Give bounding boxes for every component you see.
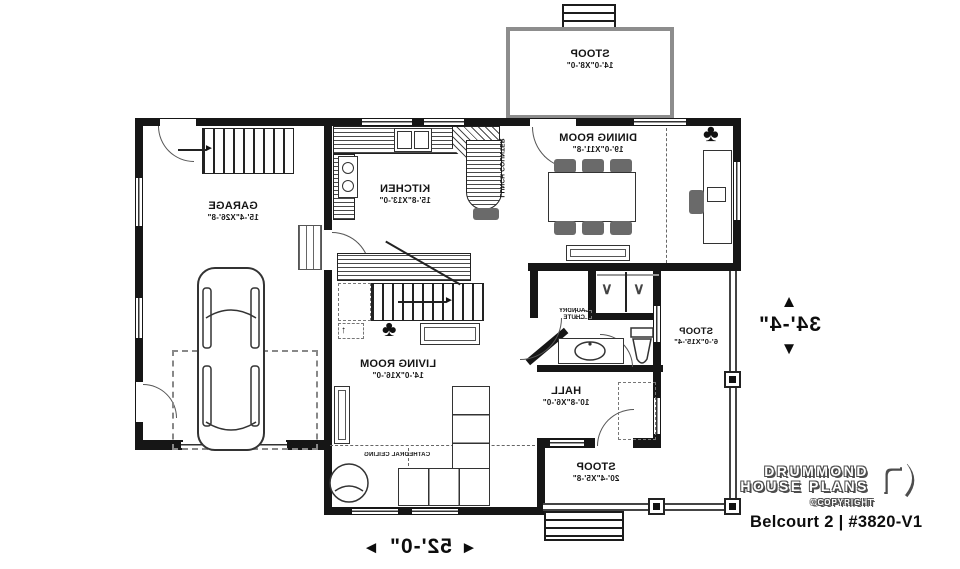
living-dims: 14'-0"X16'-0": [338, 371, 458, 381]
floor-plan: STOOP 14'-0"X8'-0" ►: [0, 0, 960, 569]
copyright-label: ©COPYRIGHT: [740, 499, 960, 507]
dining-chair: [610, 221, 632, 235]
wall-closet-bottom: [596, 313, 661, 320]
bath-sink-icon: [572, 340, 608, 363]
plant-icon-dining: ♣: [703, 122, 719, 146]
width-dimension-value: 52'-0": [389, 535, 452, 559]
kitchen-window-2: [424, 119, 464, 125]
car-icon: [190, 262, 280, 456]
branding-block: DRUMMOND HOUSE PLANS ©COPYRIGHT Belcourt…: [740, 459, 960, 545]
porch-post: [724, 498, 741, 515]
logo-wordmark: DRUMMOND HOUSE PLANS: [740, 464, 869, 493]
living-cabinet: [334, 386, 350, 444]
dining-table: [548, 172, 636, 222]
laundry-chute-line1: LAUNDRY: [552, 308, 596, 315]
living-label: LIVING ROOM 14'-0"X16'-0": [338, 358, 458, 381]
stoop-right-dims: 6'-0"X15'-4": [636, 337, 756, 346]
arrow-left-icon: ◄: [363, 539, 380, 556]
stove-burner-1: [342, 162, 354, 174]
dining-name: DINING ROOM: [538, 132, 658, 145]
stoop-top-dims: 14'-0"X8'-0": [530, 61, 650, 71]
logo-line2: HOUSE PLANS: [740, 479, 869, 494]
stairs-arrow-icon: ►: [444, 296, 454, 306]
stoop-right-name: STOOP: [636, 326, 756, 337]
dining-dims: 19'-0"X11'-8": [538, 145, 658, 155]
hanger-icon-2: ∨: [633, 282, 645, 298]
logo-line1: DRUMMOND: [740, 464, 869, 479]
porch-post: [648, 498, 665, 515]
kitchen-dims: 15'-8"X13'-0": [345, 196, 465, 206]
dining-window-right: [734, 162, 740, 220]
hanger-icon-1: ∨: [601, 282, 613, 298]
garage-label: GARAGE 15'-4"X26'-8": [173, 200, 293, 223]
top-stoop-outline: [506, 27, 674, 119]
garage-window-1: [136, 178, 142, 226]
living-window-1: [352, 509, 398, 514]
porch-post: [724, 371, 741, 388]
laundry-chute-line2: CHUTE: [552, 315, 596, 322]
porch-rail-bottom: [543, 503, 737, 511]
living-window-2: [412, 509, 458, 514]
dining-chair: [554, 159, 576, 173]
laundry-chute-box-2: [0, 52, 17, 70]
stoop-right-label: STOOP 6'-0"X15'-4": [636, 326, 756, 346]
kitchen-window-1: [362, 119, 412, 125]
stairs-arrow-line: [398, 301, 446, 303]
round-chair-icon: [328, 462, 370, 504]
logo-row: DRUMMOND HOUSE PLANS: [740, 459, 960, 499]
lunch-counter-label: LUNCH COUNTER: [497, 132, 505, 204]
closet-divider: [625, 272, 627, 312]
arrow-right-icon: ►: [460, 539, 477, 556]
garage-stairs-arrow-icon: ►: [204, 144, 214, 154]
plan-title: Belcourt 2 | #3820-V1: [740, 513, 960, 532]
stoop-bottom-name: STOOP: [536, 461, 656, 474]
living-ceiling-line: [330, 445, 535, 446]
arrow-down-icon: ▼: [781, 340, 798, 357]
stairs-up-arrow-icon: ↑: [341, 326, 346, 336]
garage-dims: 15'-4"X26'-8": [173, 213, 293, 223]
drummond-logo-icon: [874, 459, 920, 499]
garage-top-door-gap: [160, 119, 196, 126]
wall-divider: [324, 126, 332, 507]
hall-label: HALL 10'-8"X6'-0": [506, 385, 626, 408]
bottom-stoop-steps: [544, 511, 624, 541]
wall-dining-bottom: [528, 263, 741, 271]
mudroom-door-gap: [324, 230, 332, 270]
arrow-up-icon: ▲: [781, 293, 798, 310]
garage-top-door-arc: [158, 126, 194, 162]
desk-monitor: [707, 187, 726, 202]
hall-left-door-arc: [520, 318, 562, 360]
hall-name: HALL: [506, 385, 626, 398]
stoop-top-label: STOOP 14'-0"X8'-0": [530, 48, 650, 71]
wall-laundry-left: [530, 263, 538, 318]
kitchen-sink-basin-right: [414, 131, 429, 149]
buffet: [566, 245, 630, 261]
cathedral-ceiling-label: CATHEDRAL CEILING: [342, 452, 452, 459]
garage-window-2: [136, 298, 142, 338]
counter-stool: [473, 208, 499, 220]
stoop-bottom-label: STOOP 20'-4"X5'-8": [536, 461, 656, 484]
porch-rail-right: [729, 271, 737, 509]
stairs-dashed-run: [338, 283, 371, 321]
hall-dims: 10'-8"X6'-0": [506, 398, 626, 408]
dining-chair: [554, 221, 576, 235]
laundry-chute-label: LAUNDRY CHUTE: [552, 308, 596, 321]
sofa-section-vertical: [452, 386, 490, 472]
dining-label: DINING ROOM 19'-0"X11'-8": [538, 132, 658, 155]
kitchen-peninsula: [337, 253, 471, 281]
kitchen-label: KITCHEN 15'-8"X13'-0": [345, 183, 465, 206]
dining-ceiling-line: [666, 128, 667, 263]
plant-icon-stairs: ♣: [382, 318, 396, 340]
laundry-chute-box-1: [0, 34, 17, 52]
garage-side-door-gap: [136, 382, 143, 422]
sofa-section-horizontal: [398, 468, 490, 506]
mudroom-lockers: [298, 225, 322, 270]
kitchen-sink-basin-left: [397, 131, 412, 149]
garage-stairs-arrow-line: [178, 149, 206, 151]
garage-stairs: [202, 128, 294, 174]
living-name: LIVING ROOM: [338, 358, 458, 371]
desk-chair: [689, 190, 704, 214]
dining-chair: [582, 159, 604, 173]
hall-sidelight: [550, 440, 584, 446]
dining-chair: [582, 221, 604, 235]
dining-window-top: [634, 119, 686, 125]
dining-chair: [610, 159, 632, 173]
stairs-bench: [420, 323, 480, 345]
garage-name: GARAGE: [173, 200, 293, 213]
washer-box: [0, 0, 34, 34]
stoop-bottom-dims: 20'-4"X5'-8": [536, 474, 656, 484]
width-dimension: ◄ 52'-0" ►: [344, 533, 496, 561]
height-dimension-value: 34'-4": [758, 313, 821, 337]
top-stoop-steps: [562, 4, 616, 29]
kitchen-name: KITCHEN: [345, 183, 465, 196]
stoop-top-name: STOOP: [530, 48, 650, 61]
height-dimension: ▲ 34'-4" ▼: [745, 279, 833, 371]
closet-shelf-line: [597, 274, 659, 276]
stoop-door-gap: [530, 119, 576, 126]
